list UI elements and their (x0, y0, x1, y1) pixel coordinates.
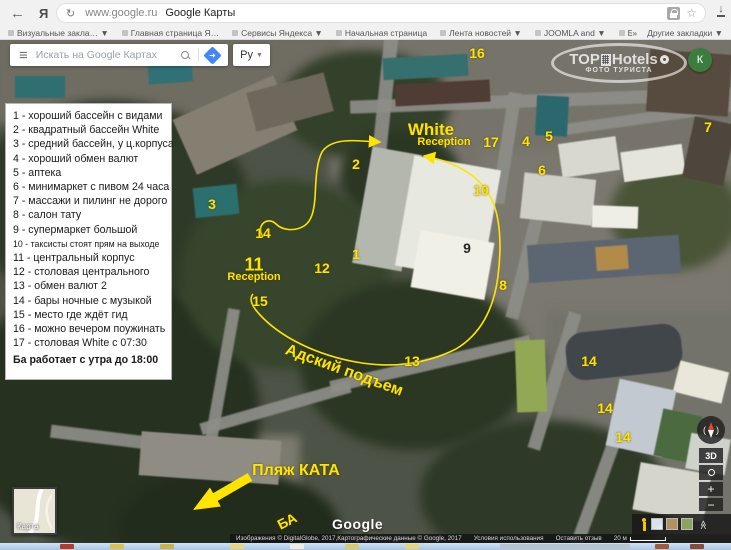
legend-item: 8 - салон тату (13, 208, 165, 222)
google-logo[interactable]: Google (332, 516, 383, 532)
legend-item: 17 - столовая White с 07:30 (13, 336, 165, 350)
minimap-label: Карта (17, 522, 38, 531)
pegman-strip: ≪ (632, 514, 731, 534)
my-location-button[interactable] (699, 465, 723, 480)
bookmark-item[interactable]: Лента новостей ▼ (440, 28, 522, 38)
legend-items: 1 - хороший бассейн с видами2 - квадратн… (13, 109, 165, 350)
map-scale: 20 м (614, 535, 666, 542)
bookmark-item[interactable]: Главная страница Я… (122, 28, 219, 38)
taskbar-icon[interactable] (160, 544, 174, 549)
legend-item: 10 - таксисты стоят прям на выходе (13, 237, 165, 251)
legend-panel: 1 - хороший бассейн с видами2 - квадратн… (5, 103, 172, 380)
legend-item: 16 - можно вечером поужинать (13, 322, 165, 336)
caret-down-icon: ▼ (256, 52, 263, 59)
taskbar-icon[interactable] (500, 544, 630, 549)
legend-item: 3 - средний бассейн, у ц.корпуса (13, 137, 165, 151)
bookmark-item[interactable]: JOOMLA and ▼ (535, 28, 606, 38)
bookmark-star-icon[interactable]: ☆ (686, 6, 697, 20)
account-avatar[interactable]: К (688, 48, 712, 72)
more-bookmarks-chevron[interactable]: » (632, 28, 637, 38)
compass-needle-icon (708, 422, 714, 438)
legend-item: 14 - бары ночные с музыкой (13, 294, 165, 308)
legend-item: 15 - место где ждёт гид (13, 308, 165, 322)
legend-item: 1 - хороший бассейн с видами (13, 109, 165, 123)
taskbar-icon[interactable] (405, 544, 419, 549)
taskbar-icon[interactable] (110, 544, 124, 549)
bookmark-item[interactable]: Сервисы Яндекса ▼ (232, 28, 323, 38)
page-title: Google Карты (165, 7, 235, 19)
legend-item: 12 - столовая центрального (13, 265, 165, 279)
taskbar-icon[interactable] (690, 544, 704, 549)
legend-item: 9 - супермаркет большой (13, 223, 165, 237)
directions-button[interactable]: ➜ (203, 46, 221, 64)
browser-window: ← Я ↻ www.google.ru Google Карты ☆ ↓ Виз… (0, 0, 731, 550)
address-bar[interactable]: ↻ www.google.ru Google Карты ☆ (57, 4, 705, 22)
reload-icon[interactable]: ↻ (66, 7, 75, 20)
layer-thumb-map[interactable] (681, 518, 693, 530)
taskbar (0, 543, 731, 550)
pegman-icon[interactable] (640, 518, 648, 531)
bookmark-item[interactable]: Визуальные закла… ▼ (8, 28, 109, 38)
legend-item: 7 - массажи и пилинг не дорого (13, 194, 165, 208)
download-button[interactable]: ↓ (717, 5, 725, 17)
location-ring-icon (708, 469, 715, 476)
taskbar-icon[interactable] (230, 544, 244, 549)
language-button[interactable]: Ру ▼ (233, 44, 270, 66)
scale-bar-icon (630, 537, 666, 541)
3d-button[interactable]: 3D (699, 448, 723, 463)
bookmarks-bar: Визуальные закла… ▼Главная страница Я…Се… (0, 26, 731, 40)
maps-search-box[interactable]: ≡ ➜ (10, 44, 228, 66)
attribution-bar: Изображения © DigitalGlobe, 2017,Картогр… (230, 534, 731, 543)
legend-footer: Ба работает с утра до 18:00 (13, 354, 165, 366)
collapse-chevron-icon[interactable]: ≪ (698, 520, 709, 528)
search-input[interactable] (36, 49, 181, 61)
legend-item: 11 - центральный корпус (13, 251, 165, 265)
menu-icon[interactable]: ≡ (19, 47, 28, 64)
taskbar-icon[interactable] (60, 544, 74, 549)
bookmark-item[interactable]: Начальная страница (336, 28, 427, 38)
back-button[interactable]: ← (10, 5, 25, 22)
attribution-text: Изображения © DigitalGlobe, 2017,Картогр… (236, 535, 462, 542)
minimap-toggle[interactable]: Карта (12, 487, 57, 535)
legend-item: 4 - хороший обмен валют (13, 152, 165, 166)
taskbar-icon[interactable] (655, 544, 669, 549)
terms-link[interactable]: Условия использования (474, 535, 544, 542)
map-viewport[interactable]: ≡ ➜ Ру ▼ К TOP Hotels ФОТО ТУРИСТА 1 - х… (0, 40, 731, 543)
zoom-in-button[interactable]: + (699, 482, 723, 496)
legend-item: 2 - квадратный бассейн White (13, 123, 165, 137)
bookmark-item[interactable]: Бухгалтерия.Контур: (619, 28, 633, 38)
yandex-logo: Я (39, 6, 48, 21)
taskbar-icon[interactable] (290, 544, 304, 549)
layer-thumb-satellite[interactable] (651, 518, 663, 530)
zoom-out-button[interactable]: − (699, 498, 723, 511)
other-bookmarks-button[interactable]: Другие закладки ▼ (647, 28, 723, 38)
layer-thumb-terrain[interactable] (666, 518, 678, 530)
legend-item: 5 - аптека (13, 166, 165, 180)
legend-item: 6 - минимаркет с пивом 24 часа (13, 180, 165, 194)
search-icon[interactable] (181, 51, 190, 60)
taskbar-icon[interactable] (345, 544, 359, 549)
browser-toolbar: ← Я ↻ www.google.ru Google Карты ☆ ↓ (0, 0, 731, 26)
compass-control[interactable]: ( ) (697, 416, 725, 444)
legend-item: 13 - обмен валют 2 (13, 279, 165, 293)
feedback-link[interactable]: Оставить отзыв (556, 535, 602, 542)
url-host: www.google.ru (85, 7, 157, 19)
protect-icon[interactable] (667, 7, 680, 20)
bookmark-items: Визуальные закла… ▼Главная страница Я…Се… (8, 28, 632, 38)
